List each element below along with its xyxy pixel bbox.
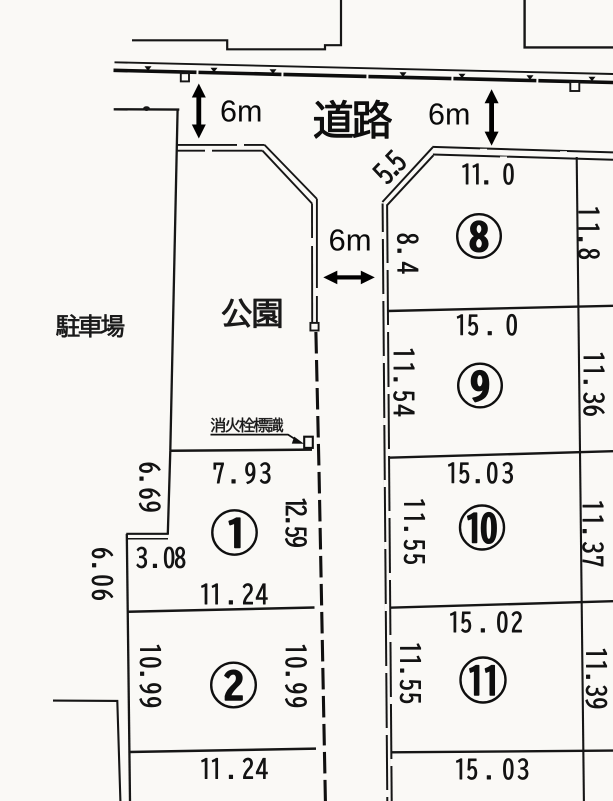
svg-text:6m: 6m bbox=[220, 95, 262, 129]
svg-text:6m: 6m bbox=[329, 223, 372, 258]
svg-text:6m: 6m bbox=[428, 98, 470, 132]
